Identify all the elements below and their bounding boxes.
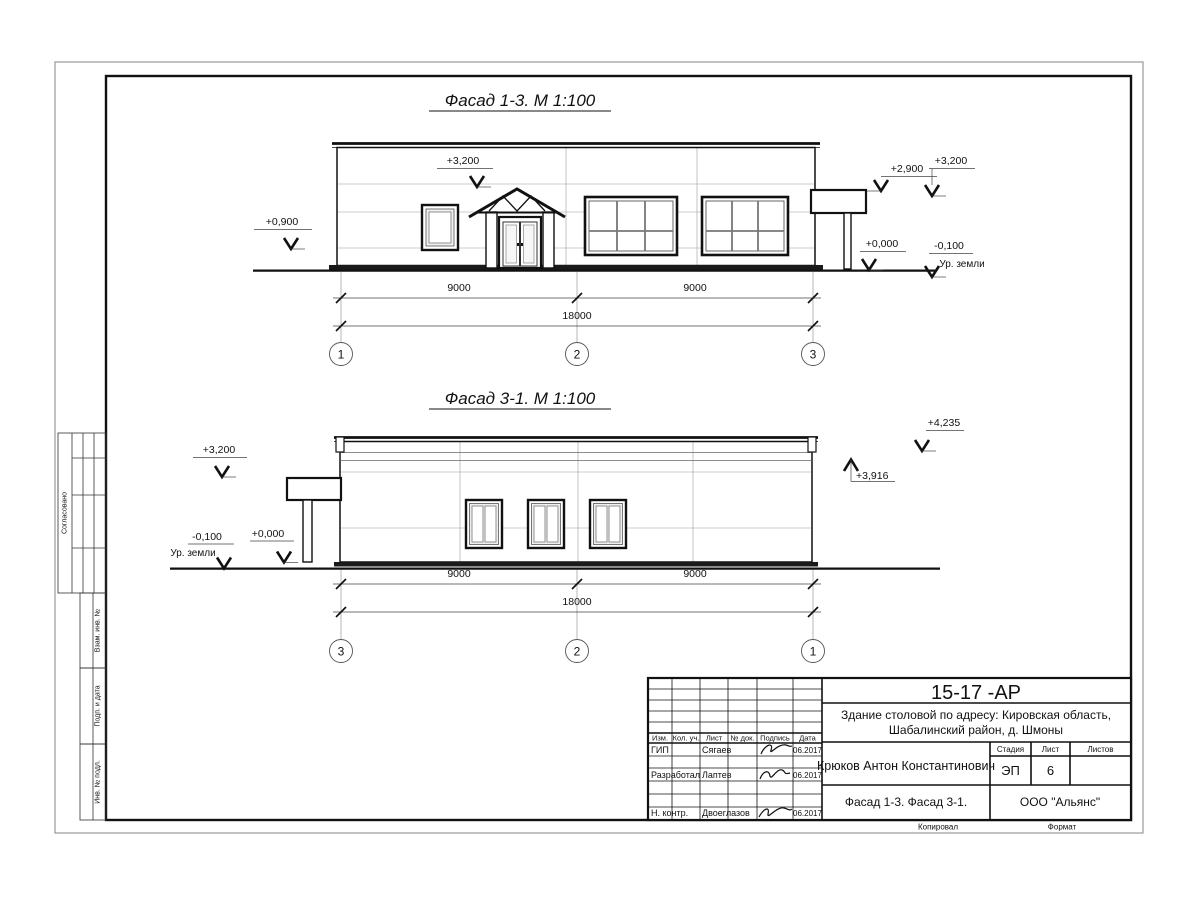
row-role: ГИП: [651, 745, 669, 755]
axis-number: 1: [338, 348, 345, 362]
axis-number: 1: [810, 645, 817, 659]
ground-level-label: Ур. земли: [170, 548, 215, 559]
row-role: Разработал: [651, 770, 700, 780]
object-line2: Шабалинский район, д. Шмоны: [889, 723, 1063, 737]
copied-label: Копировал: [918, 823, 958, 832]
facade1-window-2: [702, 197, 788, 255]
row-name: Лаптев: [702, 770, 732, 780]
facade2-window-3: [590, 500, 626, 548]
row-name: Двоеглазов: [702, 808, 750, 818]
dim-label: 9000: [683, 282, 707, 294]
approved-label: Согласовано: [62, 492, 69, 534]
drawing-sheet: Согласовано Взам. инв. № Подп. и дата Ин…: [0, 0, 1200, 900]
facade2-window-2: [528, 500, 564, 548]
ground-level-label: Ур. земли: [939, 259, 984, 270]
object-line1: Здание столовой по адресу: Кировская обл…: [841, 708, 1111, 722]
canopy-post: [303, 500, 312, 562]
svg-text:+3,200: +3,200: [935, 155, 968, 167]
dim-label: 9000: [447, 568, 471, 580]
inv-label: Инв. № подл.: [95, 760, 102, 804]
axis-number: 2: [574, 645, 581, 659]
dim-label: 9000: [447, 282, 471, 294]
svg-text:+3,200: +3,200: [447, 155, 480, 167]
svg-text:+2,900: +2,900: [891, 163, 924, 175]
title-block: Изм. Кол. уч. Лист № док. Подпись Дата Г…: [648, 678, 1131, 832]
canopy-post: [844, 213, 851, 269]
col-date: Дата: [799, 734, 816, 743]
col-sign: Подпись: [760, 734, 790, 743]
svg-text:+0,000: +0,000: [252, 528, 285, 540]
col-izm: Изм.: [652, 734, 668, 743]
axis-number: 3: [338, 645, 345, 659]
corner-cap: [336, 437, 344, 452]
sheets-label: Листов: [1088, 745, 1114, 754]
row-name: Сягаев: [702, 745, 731, 755]
svg-text:-0,100: -0,100: [934, 240, 964, 252]
facade1-title: Фасад 1-3. М 1:100: [445, 91, 596, 110]
facade1-window-1: [585, 197, 677, 255]
facade2-plinth: [334, 562, 818, 567]
stage-label: Стадия: [997, 745, 1024, 754]
svg-text:-0,100: -0,100: [192, 531, 222, 543]
podp-label: Подп. и дата: [95, 685, 102, 726]
sheet-label: Лист: [1042, 745, 1060, 754]
corner-cap: [808, 437, 816, 452]
col-doc: № док.: [730, 734, 754, 743]
company-name: ООО "Альянс": [1020, 795, 1100, 809]
row-role: Н. контр.: [651, 808, 688, 818]
facade2-window-1: [466, 500, 502, 548]
format-label: Формат: [1048, 823, 1077, 832]
svg-text:+3,916: +3,916: [856, 470, 889, 482]
dim-label: 18000: [562, 596, 591, 608]
doc-number: 15-17 -АР: [931, 682, 1021, 704]
col-list: Лист: [706, 734, 723, 743]
sheet-value: 6: [1047, 763, 1054, 778]
facade1-plinth: [329, 265, 823, 270]
row-date: 06.2017: [793, 809, 822, 818]
row-date: 06.2017: [793, 746, 822, 755]
author-name: Крюков Антон Константинович: [817, 759, 995, 773]
vzam-label: Взам. инв. №: [95, 609, 102, 652]
dim-label: 18000: [562, 310, 591, 322]
col-kol: Кол. уч.: [673, 734, 700, 743]
drawing-title: Фасад 1-3. Фасад 3-1.: [845, 795, 967, 809]
svg-text:+3,200: +3,200: [203, 444, 236, 456]
axis-number: 2: [574, 348, 581, 362]
svg-text:+0,000: +0,000: [866, 238, 899, 250]
dim-label: 9000: [683, 568, 707, 580]
svg-text:+0,900: +0,900: [266, 216, 299, 228]
axis-number: 3: [810, 348, 817, 362]
facade2-title: Фасад 3-1. М 1:100: [445, 389, 596, 408]
stage-value: ЭП: [1001, 763, 1020, 778]
svg-text:+4,235: +4,235: [928, 417, 961, 429]
facade1-small-window: [422, 205, 458, 250]
